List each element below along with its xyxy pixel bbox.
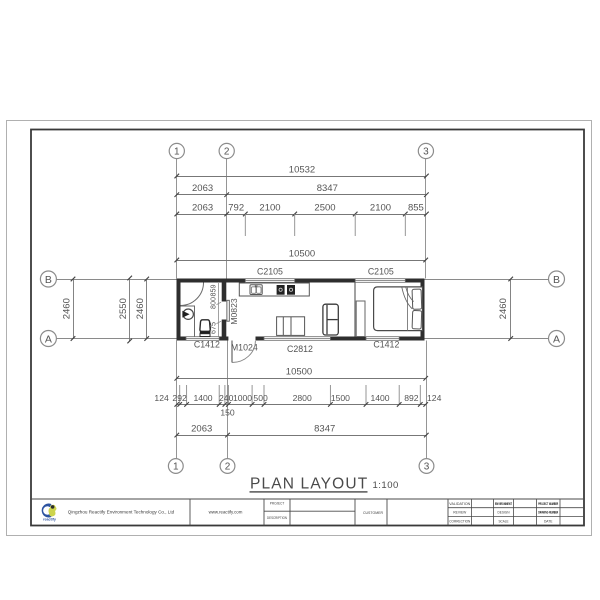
svg-text:1400: 1400 [193,393,212,403]
svg-text:2: 2 [224,147,230,158]
svg-text:2: 2 [225,462,231,473]
svg-text:10532: 10532 [289,164,315,175]
svg-text:1:100: 1:100 [373,480,399,491]
svg-text:DRAWING NUMBER: DRAWING NUMBER [538,511,558,515]
svg-text:1400: 1400 [370,393,389,403]
svg-text:2800: 2800 [293,393,312,403]
svg-text:C1412: C1412 [194,339,220,349]
svg-text:REVIEW: REVIEW [453,511,467,515]
svg-text:reactify: reactify [43,518,56,522]
svg-text:1000: 1000 [233,393,252,403]
svg-text:8347: 8347 [314,423,335,434]
svg-text:DATE: DATE [544,519,553,523]
svg-text:8347: 8347 [317,183,338,194]
svg-text:800: 800 [208,297,217,309]
svg-text:2100: 2100 [370,203,391,214]
svg-text:792: 792 [228,203,244,214]
svg-text:C2105: C2105 [257,266,283,276]
svg-text:B: B [45,274,52,286]
svg-text:10500: 10500 [289,248,315,259]
svg-text:240: 240 [219,393,234,403]
svg-text:www.reactify.com: www.reactify.com [209,509,243,514]
svg-text:2550: 2550 [118,298,129,319]
svg-text:VALIDATION: VALIDATION [449,502,470,506]
svg-text:855: 855 [408,203,424,214]
svg-text:DESCRIPTION: DESCRIPTION [267,516,287,520]
svg-text:2063: 2063 [191,423,212,434]
svg-text:C2105: C2105 [368,266,394,276]
svg-text:C1412: C1412 [373,339,399,349]
svg-text:3: 3 [424,462,430,473]
svg-text:10500: 10500 [286,366,312,377]
svg-text:DESIGN: DESIGN [498,511,510,515]
svg-text:PROJECT: PROJECT [270,501,285,505]
svg-text:C2812: C2812 [287,344,313,354]
svg-text:2063: 2063 [192,203,213,214]
svg-text:2460: 2460 [498,298,509,319]
svg-text:500: 500 [253,393,268,403]
svg-text:M1024: M1024 [231,342,258,352]
svg-text:Qingzhou Reactify Environment: Qingzhou Reactify Environment Technology… [68,509,175,514]
svg-text:2500: 2500 [314,203,335,214]
svg-text:ENVIRONMENT: ENVIRONMENT [495,502,513,506]
svg-text:2460: 2460 [62,298,73,319]
svg-text:859: 859 [208,285,217,297]
svg-text:124: 124 [154,393,169,403]
svg-text:1: 1 [174,147,180,158]
svg-text:PLAN LAYOUT: PLAN LAYOUT [250,476,368,493]
svg-text:A: A [553,333,560,345]
svg-text:2063: 2063 [192,183,213,194]
svg-text:CORRECTION: CORRECTION [449,519,470,523]
svg-text:892: 892 [404,393,419,403]
svg-text:292: 292 [172,393,187,403]
svg-text:1500: 1500 [331,393,350,403]
svg-text:1: 1 [173,462,179,473]
svg-text:3: 3 [423,147,429,158]
svg-text:SCALE: SCALE [499,519,510,523]
svg-text:2460: 2460 [135,298,146,319]
svg-text:2100: 2100 [259,203,280,214]
svg-text:PROJECT NUMBER: PROJECT NUMBER [538,502,558,506]
svg-text:150: 150 [220,407,235,417]
svg-text:124: 124 [427,393,442,403]
svg-text:CUSTOMER: CUSTOMER [363,511,383,515]
svg-text:A: A [45,333,52,345]
svg-text:B: B [553,274,560,286]
svg-text:M0823: M0823 [229,298,239,324]
